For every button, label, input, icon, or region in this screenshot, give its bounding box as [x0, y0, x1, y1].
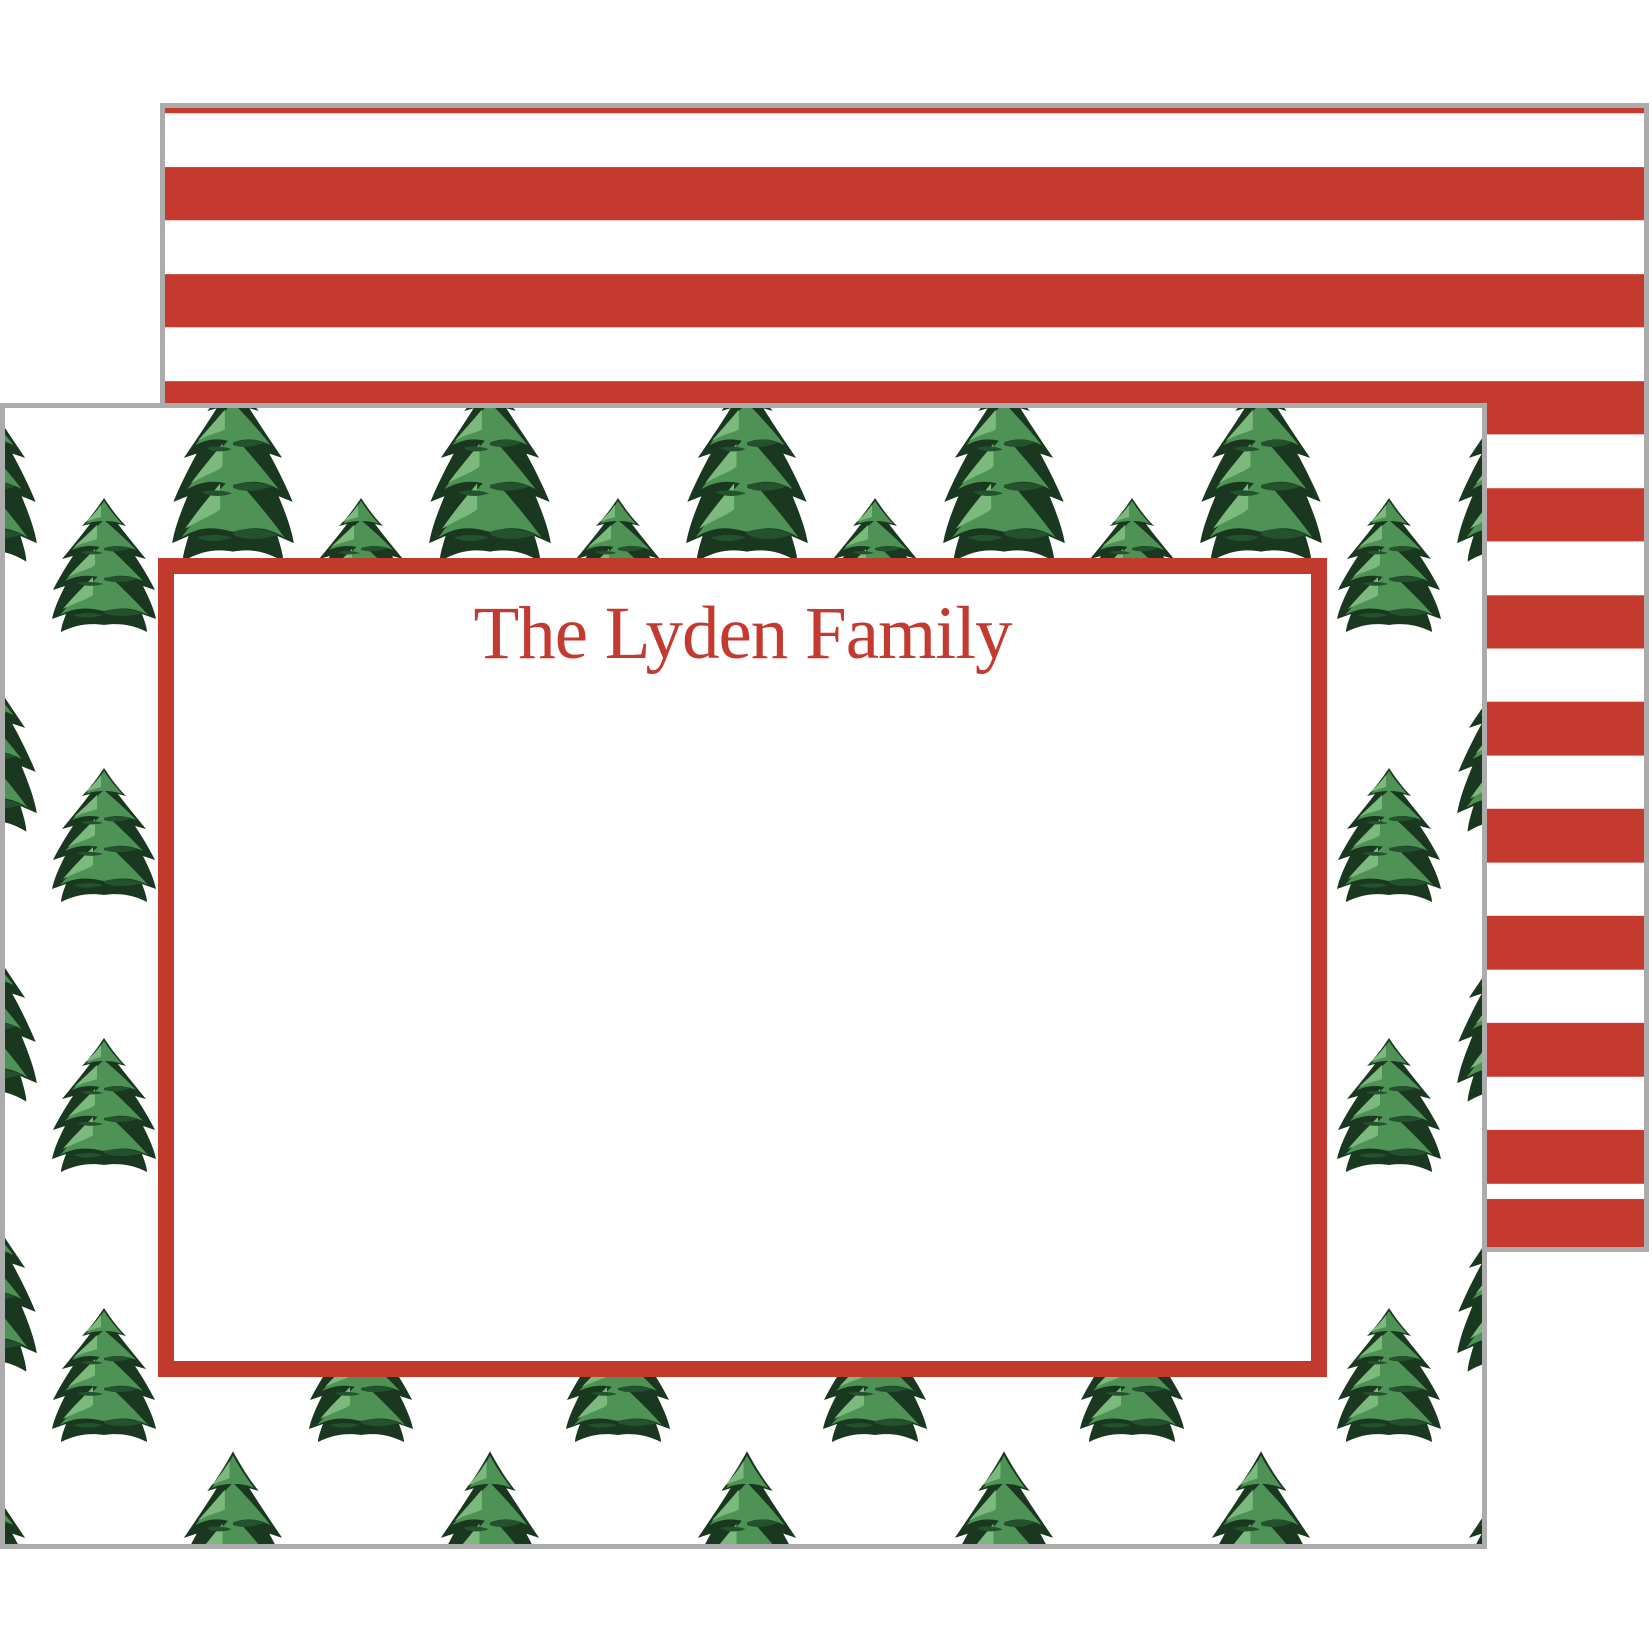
christmas-tree-icon: [1457, 1451, 1482, 1544]
christmas-tree-icon: [52, 1308, 156, 1442]
stationery-product-image: { "page": { "background": "#ffffff" }, "…: [0, 0, 1652, 1652]
christmas-tree-icon: [1337, 1308, 1441, 1442]
christmas-tree-icon: [1200, 408, 1322, 562]
christmas-tree-icon: [429, 1451, 551, 1544]
christmas-tree-icon: [5, 1451, 37, 1544]
christmas-tree-icon: [52, 498, 156, 632]
christmas-tree-icon: [686, 1451, 808, 1544]
christmas-tree-icon: [943, 408, 1065, 562]
christmas-tree-icon: [5, 1181, 37, 1371]
christmas-tree-icon: [5, 911, 37, 1101]
christmas-tree-icon: [172, 1451, 294, 1544]
christmas-tree-icon: [1457, 911, 1482, 1101]
family-name-text: The Lyden Family: [174, 596, 1311, 671]
christmas-tree-icon: [1200, 1451, 1322, 1544]
christmas-tree-icon: [1457, 408, 1482, 562]
christmas-tree-icon: [5, 641, 37, 831]
personalization-panel: The Lyden Family: [158, 558, 1327, 1377]
christmas-tree-icon: [1457, 1181, 1482, 1371]
christmas-tree-icon: [172, 408, 294, 562]
christmas-tree-icon: [52, 768, 156, 902]
christmas-tree-icon: [52, 1038, 156, 1172]
christmas-tree-icon: [5, 408, 37, 562]
tree-pattern-front-card: The Lyden Family: [0, 403, 1487, 1549]
christmas-tree-icon: [429, 408, 551, 562]
christmas-tree-icon: [1457, 641, 1482, 831]
christmas-tree-icon: [943, 1451, 1065, 1544]
christmas-tree-icon: [1337, 498, 1441, 632]
christmas-tree-icon: [686, 408, 808, 562]
christmas-tree-icon: [1337, 1038, 1441, 1172]
christmas-tree-icon: [1337, 768, 1441, 902]
